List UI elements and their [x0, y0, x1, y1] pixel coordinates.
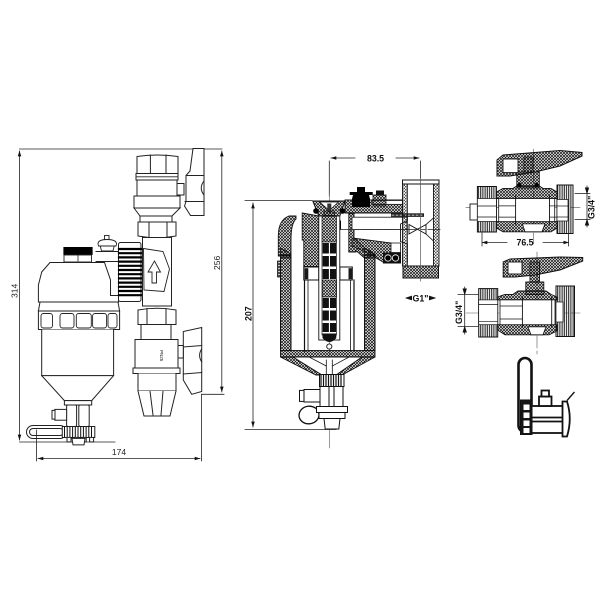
svg-text:207: 207 [244, 306, 254, 321]
svg-text:PN25: PN25 [159, 350, 164, 362]
svg-text:G3/4": G3/4" [454, 301, 464, 324]
svg-text:G3/4": G3/4" [587, 196, 597, 219]
svg-text:256: 256 [212, 256, 222, 270]
svg-text:76.5: 76.5 [516, 238, 533, 248]
svg-text:83.5: 83.5 [367, 154, 384, 164]
svg-text:174: 174 [112, 447, 126, 457]
svg-text:314: 314 [10, 284, 20, 298]
svg-text:G1": G1" [413, 294, 429, 304]
